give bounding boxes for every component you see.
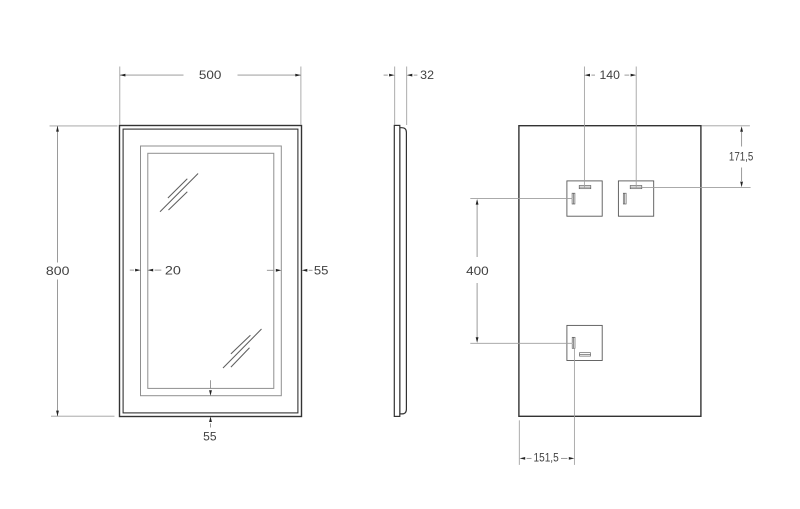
svg-text:171,5: 171,5	[729, 149, 754, 163]
svg-text:151,5: 151,5	[534, 451, 559, 465]
svg-text:55: 55	[203, 430, 217, 444]
svg-text:32: 32	[420, 68, 434, 82]
svg-text:20: 20	[165, 264, 181, 278]
svg-text:800: 800	[46, 264, 70, 278]
svg-text:55: 55	[314, 264, 329, 278]
svg-text:400: 400	[466, 264, 489, 278]
svg-text:500: 500	[199, 68, 222, 82]
svg-text:140: 140	[600, 68, 621, 82]
